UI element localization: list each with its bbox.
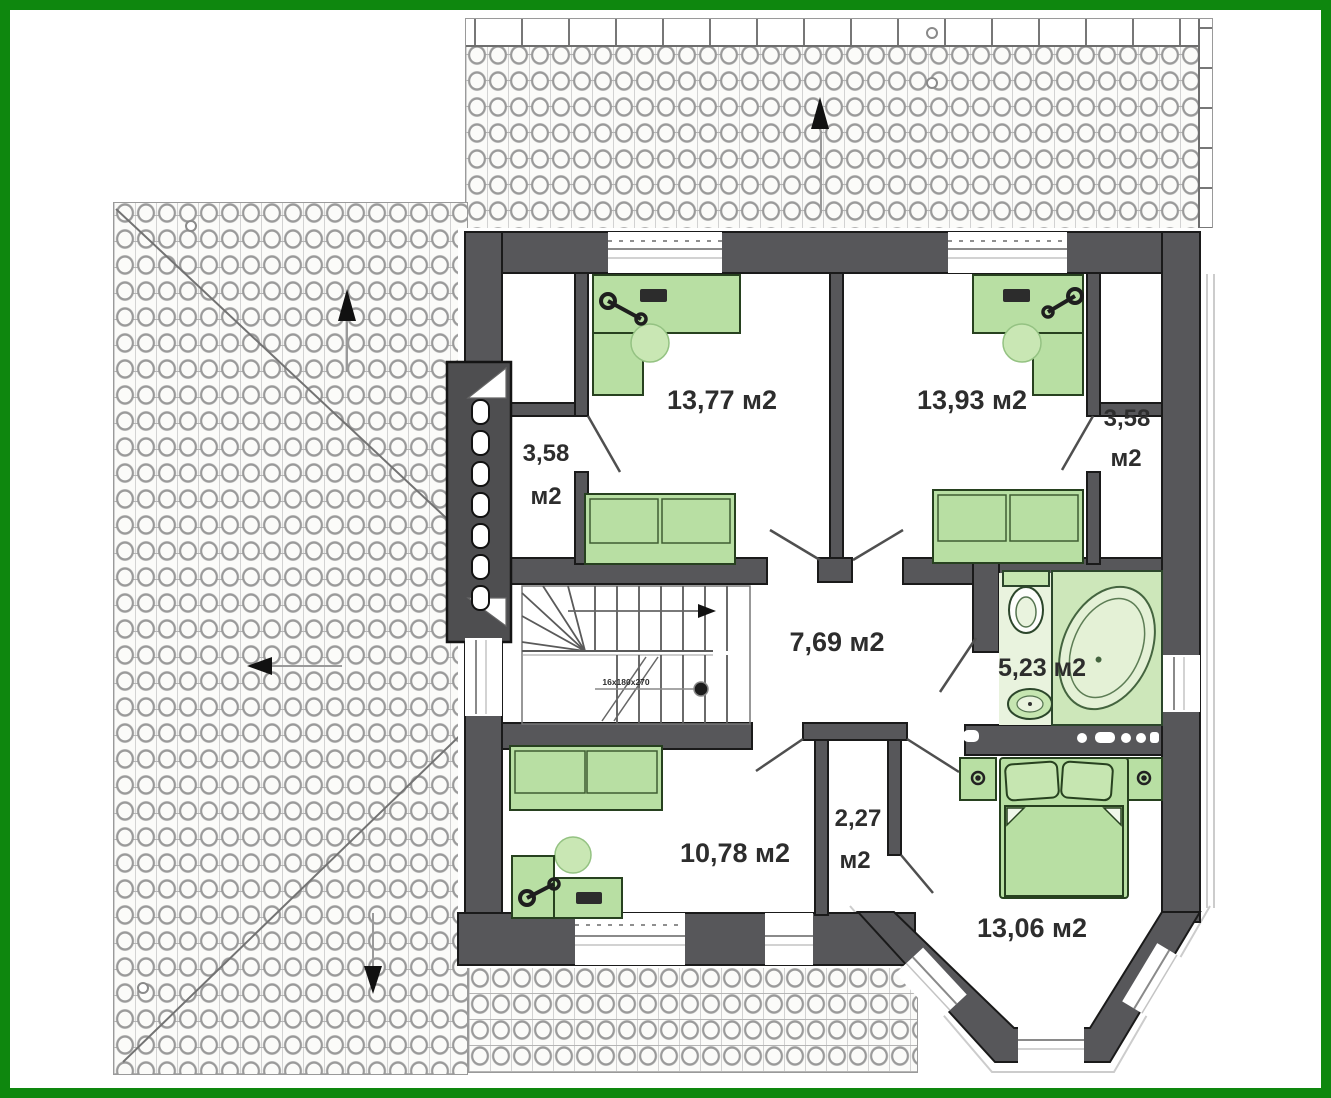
room-label-closet-left-value: 3,58 [523, 440, 570, 467]
arrow-up-icon [811, 97, 829, 129]
roof-ridge-horizontal [466, 19, 1212, 47]
partition-stub [818, 558, 852, 582]
closet-227-header [803, 723, 907, 740]
sink [1008, 689, 1052, 719]
partition-center [830, 273, 843, 560]
window-right-bathroom [1162, 655, 1200, 712]
bay-window-bottom [1018, 1024, 1084, 1064]
sofa-room-top-right [933, 490, 1083, 563]
sofa-room-bottom-left [510, 746, 662, 810]
bathtub [1041, 571, 1173, 725]
room-label-bathroom: 5,23 м2 [998, 654, 1086, 682]
room-label-closet-left-unit: м2 [530, 483, 561, 510]
bedroom-top-wall [965, 725, 1162, 755]
sofa-room-top-left [585, 494, 735, 564]
arrow-up-icon [346, 320, 348, 372]
arrow-up-icon [338, 289, 356, 321]
room-label-closet-right-unit: м2 [1110, 445, 1141, 472]
room-label-closet-right-value: 3,58 [1104, 405, 1151, 432]
room-label-hall: 7,69 м2 [789, 627, 884, 657]
bathroom-left-wall [973, 558, 999, 652]
wall-top [465, 232, 1200, 273]
floor-plan: 16x180x270 13,77 м2 13,93 м2 3,58 м2 3,5… [440, 195, 1225, 1085]
closet-227-right-wall [888, 740, 901, 855]
window-bottom-small [765, 913, 813, 965]
keyboard-icon [1003, 289, 1030, 302]
blanket [1005, 806, 1123, 896]
chair [631, 324, 669, 362]
arrow-down-icon [372, 913, 374, 968]
roof-vent-icon [185, 220, 197, 232]
roof-hip-line [122, 729, 466, 1062]
keyboard-icon [640, 289, 667, 302]
arrow-left-icon [272, 665, 342, 667]
window-top-left [608, 232, 722, 273]
plan-sheet: 16x180x270 13,77 м2 13,93 м2 3,58 м2 3,5… [0, 0, 1331, 1098]
room-label-top-right: 13,93 м2 [917, 385, 1027, 415]
roof-vent-icon [137, 982, 149, 994]
chimney-block [447, 362, 511, 642]
keyboard-icon [576, 892, 602, 904]
pillow [1005, 761, 1059, 801]
roof-left-slope [113, 202, 468, 1075]
closet-right-partition [1087, 472, 1100, 564]
stairs-annotation: 16x180x270 [602, 677, 650, 687]
closet-right-partition [1087, 273, 1100, 416]
roof-hip-line [115, 208, 462, 533]
wall-bottom [458, 913, 915, 965]
window-bottom-left [575, 913, 685, 965]
window-top-right [948, 232, 1067, 273]
room-label-closet-center-value: 2,27 [835, 805, 882, 832]
arrow-left-icon [247, 657, 272, 675]
room-label-bedroom: 13,06 м2 [977, 913, 1087, 943]
room-label-bottom-left: 10,78 м2 [680, 838, 790, 868]
chair [1003, 324, 1041, 362]
chair [555, 837, 591, 873]
window-left-stairs [465, 638, 502, 716]
closet-227-left-wall [815, 740, 828, 915]
roof-vent-icon [926, 27, 938, 39]
arrow-down-icon [364, 966, 382, 994]
wall-right [1162, 232, 1200, 922]
room-label-closet-center-unit: м2 [839, 847, 870, 874]
roof-vent-icon [926, 77, 938, 89]
stairs-node [694, 682, 708, 696]
closet-left-partition [575, 273, 588, 416]
room-label-top-left: 13,77 м2 [667, 385, 777, 415]
pillow [1061, 761, 1113, 800]
